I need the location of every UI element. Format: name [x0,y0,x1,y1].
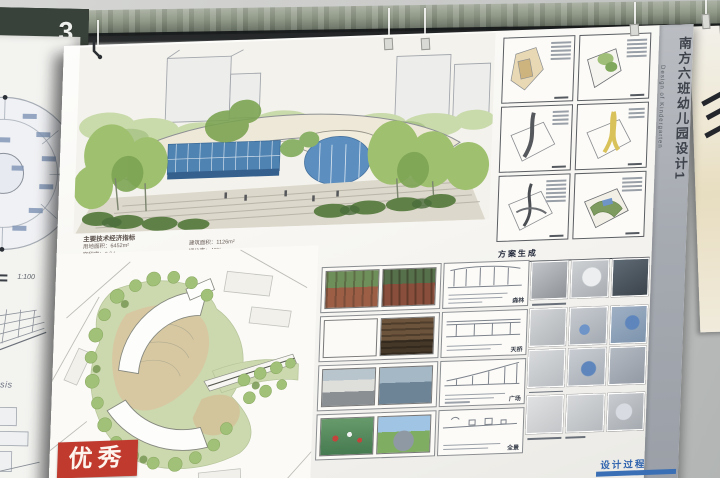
analysis-heading-fragment: alysis [0,379,13,390]
photo-totoro-cartoon [376,414,431,454]
model-photo [527,348,566,387]
analysis-diagram [577,32,651,101]
bridge-sketch [444,311,523,340]
grid-sketch [0,297,49,364]
award-stamp: 优秀 [57,440,138,478]
model-photo [566,393,605,432]
model-photo [609,304,648,343]
concept-sketch-panel: 广场 [439,358,527,407]
intent-reference-section: 森林 [315,260,530,461]
intent-row-label: 全景 [507,442,519,451]
model-photo [530,261,569,300]
model-photo [568,347,607,386]
diagram-sketch [504,39,550,99]
partial-glyph [694,88,720,141]
binder-clip [630,24,640,36]
award-stamp-text: 优秀 [68,446,127,472]
intent-row: 森林 [320,260,529,313]
model-photo [526,395,565,434]
lower-sketch [0,401,43,478]
reference-photos [315,410,437,460]
colonnade-sketch [446,262,525,291]
model-photo [571,259,610,298]
photo-children-dancing [319,416,374,456]
photo-building-with-flags [323,318,378,358]
model-photo [529,307,568,346]
intent-row-label: 森林 [512,295,524,304]
diagram-sketch [580,36,626,96]
intent-row-label: 天桥 [510,344,522,353]
concept-sketch-panel: 全景 [437,407,525,456]
model-photo [608,345,647,384]
binder-clip [421,38,431,50]
model-caption [525,433,643,440]
photo-street-view [321,367,376,407]
exhibition-wall-photo: 3 [0,0,720,478]
perspective-rendering [73,33,495,234]
poster-title-en: Design of Kindergarten [656,65,665,149]
hanging-clip-dark [90,40,104,60]
model-photo [611,258,650,297]
analysis-diagram [572,171,646,240]
photo-children-in-forest [324,269,379,309]
intent-row: 天桥 [318,309,527,362]
reference-photos [317,361,439,411]
scale-note: 1:100 [17,274,35,281]
analysis-diagram [499,104,573,173]
concept-sketch-panel: 森林 [442,260,530,309]
curved-colonnade-sketch [442,360,521,389]
reference-photos [320,263,442,313]
analysis-diagram [496,173,570,242]
binder-clip [384,38,394,50]
intent-row: 全景 [315,407,524,460]
intent-row: 广场 [317,358,526,411]
analysis-diagram [501,35,575,104]
ground-profile-sketch [441,409,520,434]
site-analysis-panel [496,32,651,242]
legend-line [0,279,7,281]
photo-forest-ground [381,267,436,307]
poster-title-cn: 南方六班幼儿园设计1 [673,36,691,181]
concept-sketch-panel: 天桥 [440,309,528,358]
binder-clip [701,14,710,30]
analysis-diagram [575,102,649,171]
kindergarten-design-poster: 南方六班幼儿园设计1 Design of Kindergarten [46,24,694,478]
photo-timber-structure [380,316,435,356]
radial-diagram [0,79,65,267]
model-photo [569,306,608,345]
model-photo-grid [525,258,649,440]
model-photo [606,392,645,431]
intent-row-label: 广场 [509,393,521,402]
legend-line [0,274,7,276]
neighbor-board-right [690,26,720,333]
photo-waterfront [378,365,433,405]
reference-photos [318,312,440,362]
